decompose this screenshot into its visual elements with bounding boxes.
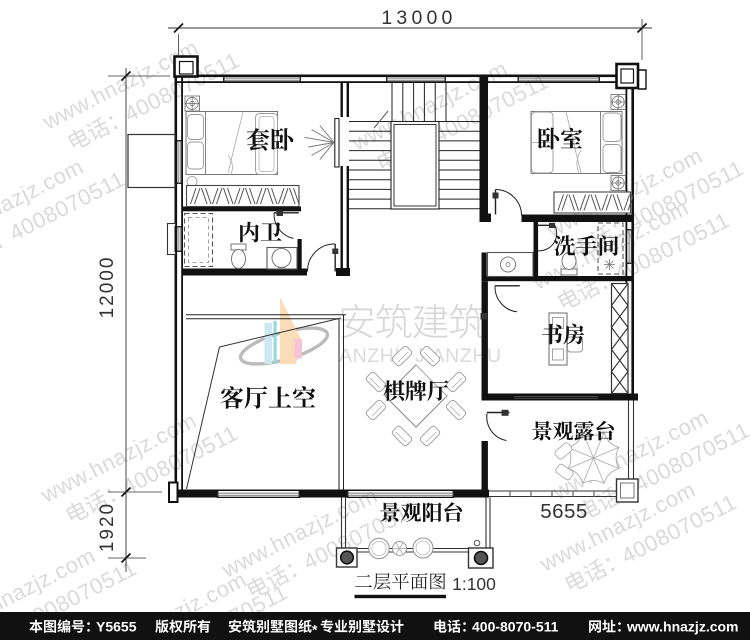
svg-text:1:100: 1:100 <box>452 574 496 594</box>
svg-text:12000: 12000 <box>97 256 118 319</box>
svg-text:1920: 1920 <box>97 502 118 552</box>
svg-text:Y5655: Y5655 <box>96 619 137 635</box>
svg-text:13000: 13000 <box>381 7 456 29</box>
svg-text:*: * <box>312 622 318 638</box>
svg-text:ANZHU JIANZHU: ANZHU JIANZHU <box>339 345 502 367</box>
svg-text:5655: 5655 <box>540 500 588 523</box>
svg-text:400-8070-511: 400-8070-511 <box>472 619 559 635</box>
svg-text:www.hnazjz.com: www.hnazjz.com <box>626 619 739 635</box>
